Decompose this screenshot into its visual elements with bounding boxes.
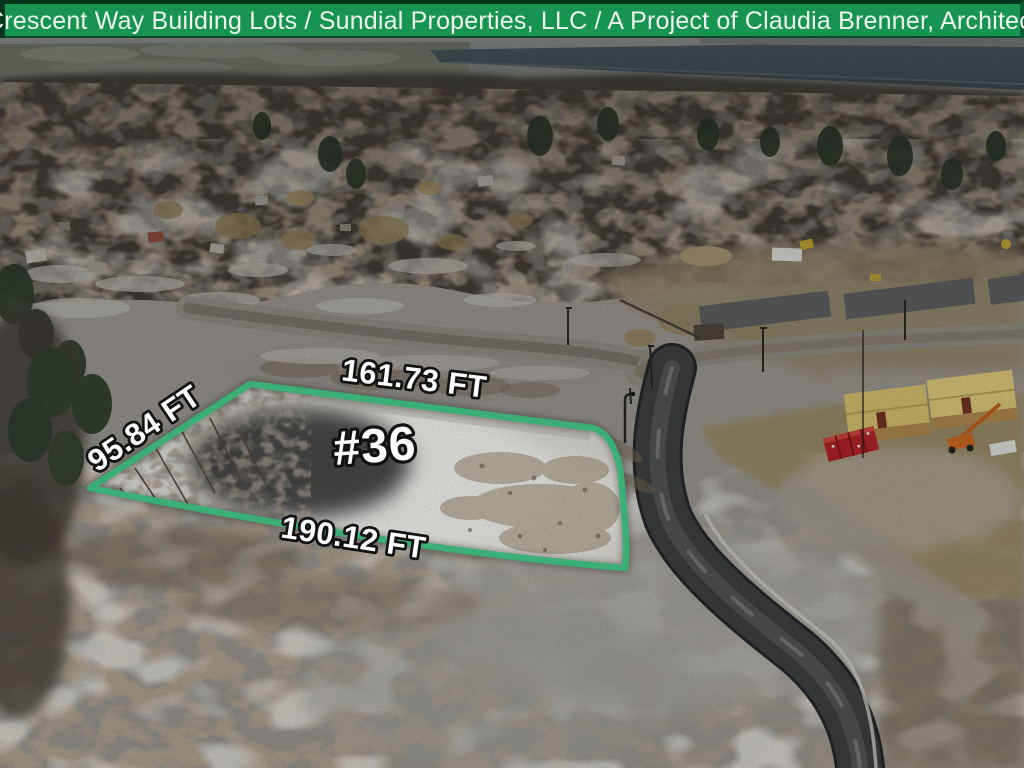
screenshot-root: Crescent Way Building Lots / Sundial Pro… <box>0 0 1024 768</box>
title-banner: Crescent Way Building Lots / Sundial Pro… <box>0 0 1024 38</box>
banner-title: Crescent Way Building Lots / Sundial Pro… <box>0 7 1024 36</box>
lot-number-label: #36 <box>332 417 419 476</box>
aerial-photo: 161.73 FT 95.84 FT 190.12 FT #36 <box>0 38 1024 768</box>
